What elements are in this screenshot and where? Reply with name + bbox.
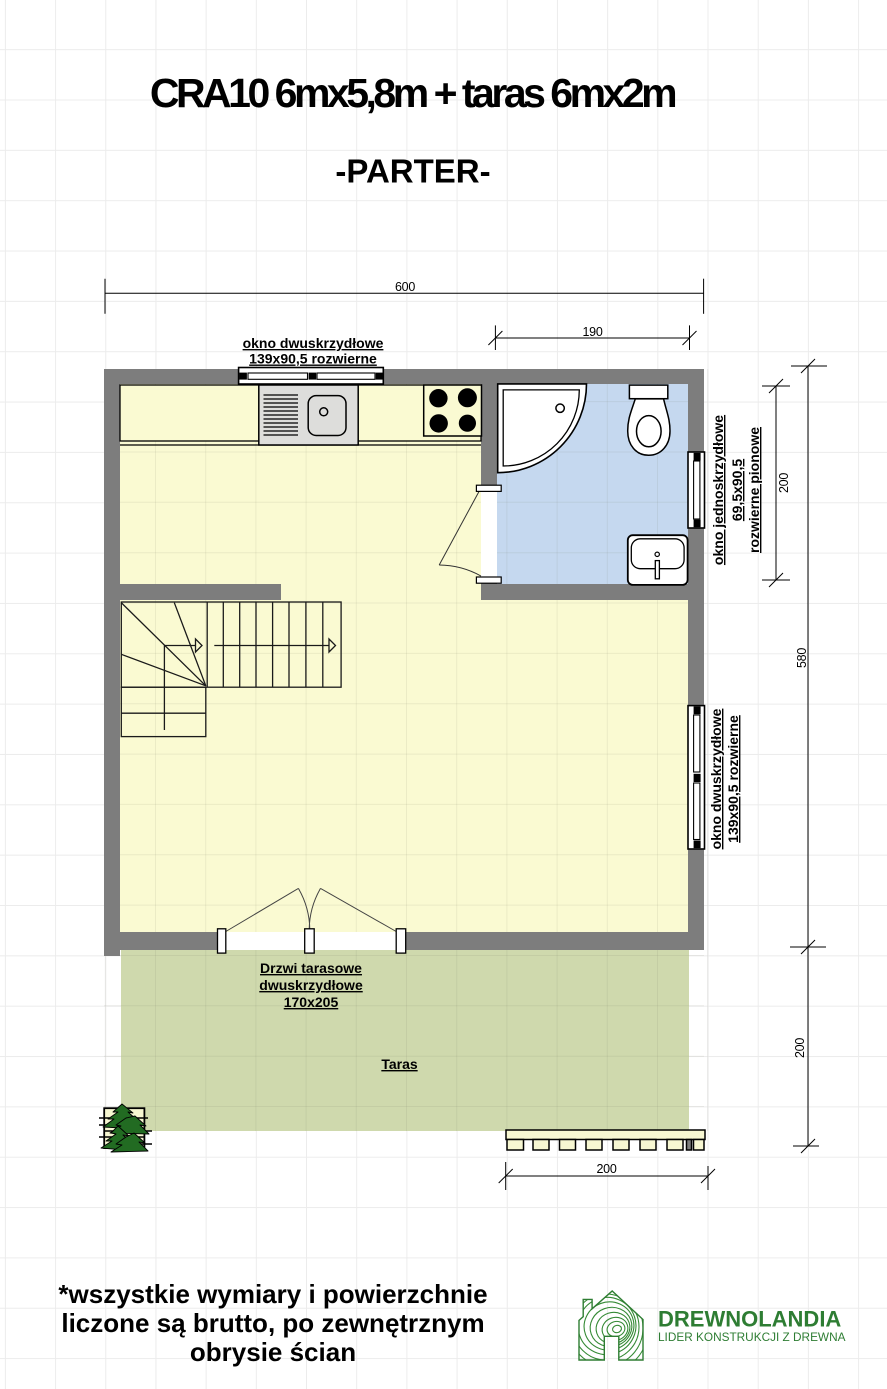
svg-text:okno dwuskrzydłowe: okno dwuskrzydłowe bbox=[708, 708, 724, 849]
svg-text:200: 200 bbox=[597, 1162, 617, 1176]
svg-text:DREWNOLANDIA: DREWNOLANDIA bbox=[658, 1307, 841, 1332]
svg-text:139x90,5 rozwierne: 139x90,5 rozwierne bbox=[249, 351, 377, 367]
svg-text:okno dwuskrzydłowe: okno dwuskrzydłowe bbox=[243, 335, 384, 351]
svg-text:190: 190 bbox=[583, 325, 603, 339]
svg-text:Taras: Taras bbox=[381, 1056, 418, 1072]
svg-text:CRA10 6mx5,8m + taras 6mx2m: CRA10 6mx5,8m + taras 6mx2m bbox=[150, 70, 675, 116]
svg-text:LIDER KONSTRUKCJI Z DREWNA: LIDER KONSTRUKCJI Z DREWNA bbox=[658, 1330, 846, 1344]
svg-text:liczone są brutto, po zewnętrz: liczone są brutto, po zewnętrznym bbox=[61, 1308, 484, 1338]
svg-text:*wszystkie wymiary i powierzch: *wszystkie wymiary i powierzchnie bbox=[58, 1279, 487, 1309]
svg-text:dwuskrzydłowe: dwuskrzydłowe bbox=[259, 977, 363, 993]
svg-text:170x205: 170x205 bbox=[284, 994, 339, 1010]
svg-text:600: 600 bbox=[395, 280, 415, 294]
svg-text:200: 200 bbox=[793, 1038, 807, 1058]
svg-text:rozwierne pionowe: rozwierne pionowe bbox=[746, 427, 762, 553]
svg-text:obrysie ścian: obrysie ścian bbox=[190, 1337, 356, 1367]
svg-text:580: 580 bbox=[795, 648, 809, 668]
svg-text:69,5x90,5: 69,5x90,5 bbox=[729, 459, 745, 521]
svg-text:139x90,5 rozwierne: 139x90,5 rozwierne bbox=[725, 715, 741, 843]
svg-text:200: 200 bbox=[777, 473, 791, 493]
svg-text:-PARTER-: -PARTER- bbox=[335, 153, 490, 190]
svg-text:Drzwi tarasowe: Drzwi tarasowe bbox=[260, 960, 362, 976]
svg-text:okno jednoskrzydłowe: okno jednoskrzydłowe bbox=[710, 415, 726, 565]
